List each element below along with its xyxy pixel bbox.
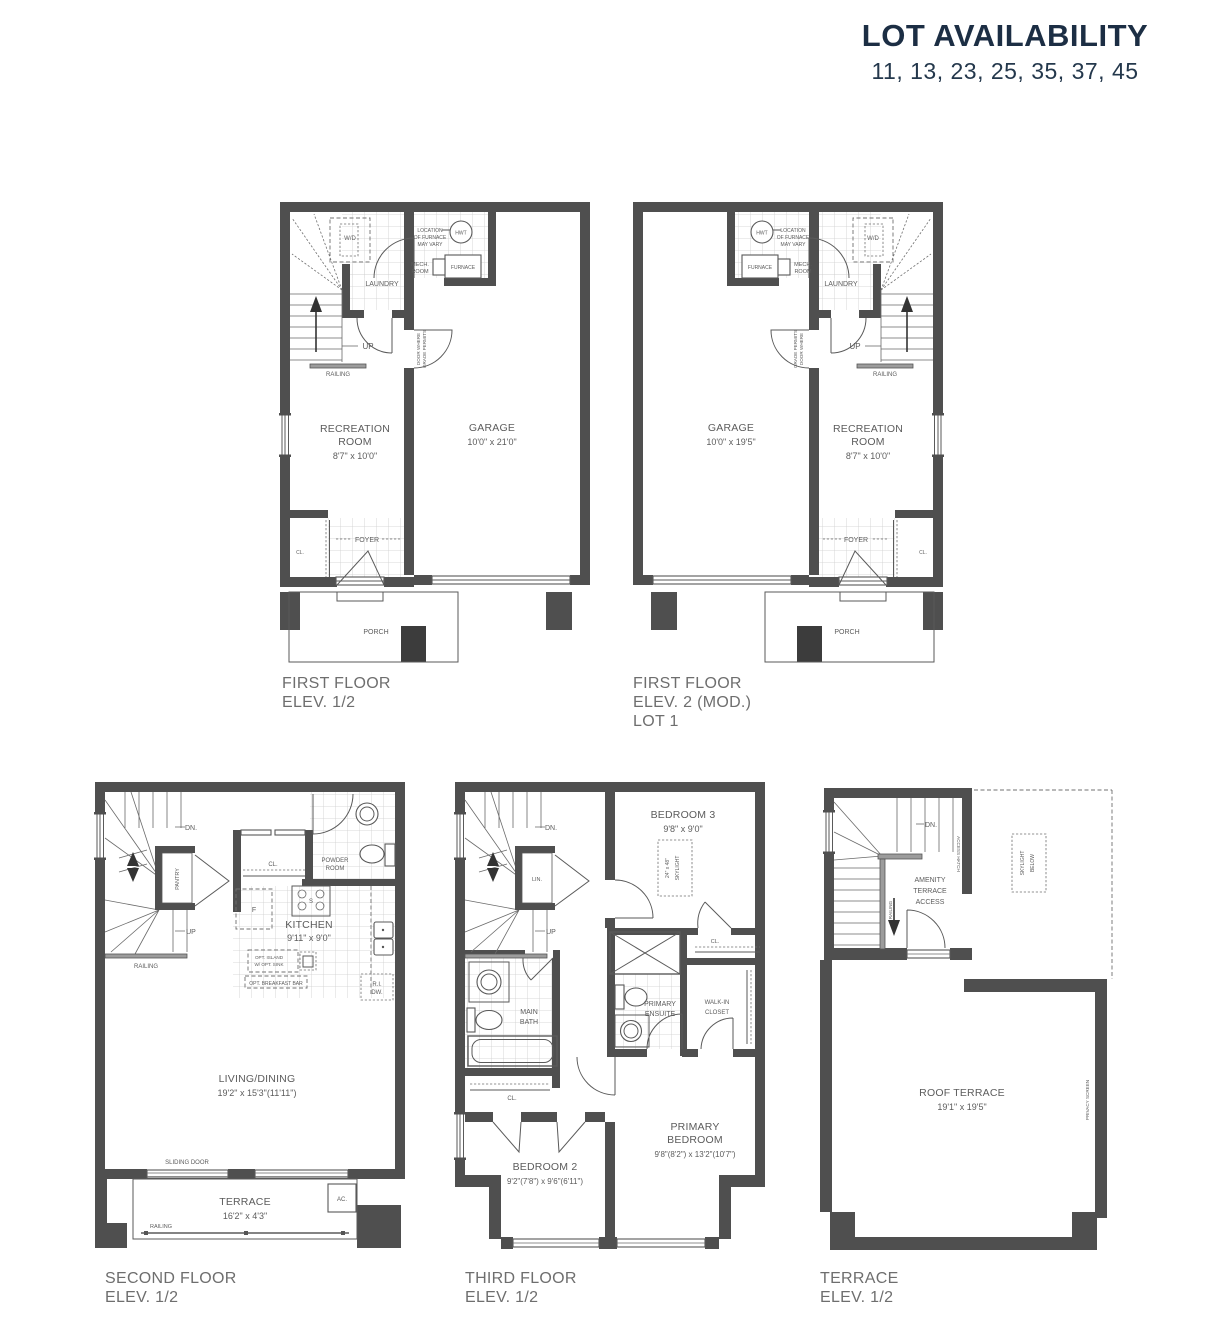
- closet-label: CL.: [711, 939, 720, 945]
- skylight-label: 24" x 48": [665, 858, 671, 878]
- island-label: OPT. ISLAND: [255, 955, 284, 960]
- recreation-room-label: RECREATION: [320, 423, 390, 435]
- first-floor-b-caption: ELEV. 2 (MOD.): [633, 694, 751, 711]
- hall-closet: [470, 1084, 550, 1090]
- recreation-room-label: ROOM: [851, 436, 884, 448]
- furnace-label: FURNACE: [748, 265, 773, 271]
- second-floor-caption: SECOND FLOOR: [105, 1270, 237, 1287]
- recreation-room-dim: 8'7" x 10'0": [333, 451, 377, 461]
- bedroom2-dim: 9'2"(7'8") x 9'6"(6'11"): [507, 1177, 583, 1186]
- up-arrow-icon: [310, 296, 322, 312]
- furnace-note: OF FURNACE: [414, 235, 447, 241]
- primary-bedroom-dim: 9'8"(8'2") x 13'2"(10'7"): [654, 1150, 735, 1159]
- terrace-dim: 16'2" x 4'3": [223, 1211, 267, 1221]
- dn-label: DN.: [925, 822, 937, 829]
- ac-label: AC.: [337, 1197, 347, 1203]
- lot-availability-header: LOT AVAILABILITY 11, 13, 23, 25, 35, 37,…: [830, 18, 1180, 85]
- terrace-caption: TERRACE: [820, 1270, 899, 1287]
- window: [823, 810, 835, 854]
- foyer-label: FOYER: [844, 537, 868, 544]
- garage-label: GARAGE: [708, 422, 754, 434]
- recreation-room-dim: 8'7" x 10'0": [846, 451, 890, 461]
- shower-icon: [610, 932, 680, 974]
- breakfast-bar-label: OPT. BREAKFAST BAR: [249, 981, 303, 987]
- recreation-room-label: RECREATION: [833, 423, 903, 435]
- primary-bedroom-label: PRIMARY: [670, 1121, 719, 1133]
- grade-door-note: GRADE PERMITS: [422, 330, 427, 368]
- walkin-label: WALK-IN: [705, 1000, 730, 1006]
- fridge-label: F: [252, 907, 256, 914]
- kitchen-dim: 9'11" x 9'0": [287, 933, 331, 943]
- hwt-label: HWT: [455, 231, 466, 237]
- linen-label: LIN.: [532, 877, 543, 883]
- door-arcs: [907, 910, 950, 958]
- third-floor-caption: ELEV. 1/2: [465, 1289, 538, 1306]
- up-label: UP: [186, 929, 196, 936]
- grade-door-note: DOOR WHERE: [799, 333, 804, 365]
- terrace-plan: DN. ACCESS HATCH RAILING AMENITY TERRACE…: [812, 782, 1132, 1328]
- first-floor-b-caption: LOT 1: [633, 713, 679, 730]
- garage-dim: 10'0" x 21'0": [467, 437, 516, 447]
- skylight-label: SKYLIGHT: [675, 856, 681, 881]
- up-label: UP: [849, 342, 860, 351]
- railing-label: RAILING: [888, 900, 893, 919]
- terrace-labels: DN. ACCESS HATCH RAILING AMENITY TERRACE…: [888, 822, 1090, 1120]
- porch-label: PORCH: [363, 629, 388, 636]
- hwt-label: HWT: [756, 231, 767, 237]
- bed3-closet: [695, 947, 760, 952]
- up-arrow-icon: [487, 852, 499, 866]
- garage-door-sill: [432, 576, 570, 584]
- linen-closet: [515, 846, 589, 910]
- grade-door-note: GRADE PERMITS: [793, 330, 798, 368]
- pantry: [155, 846, 229, 910]
- walkin-label: CLOSET: [705, 1010, 729, 1016]
- first-floor-a-caption: FIRST FLOOR: [282, 675, 391, 692]
- up-label: UP: [546, 929, 556, 936]
- closet-label: CL.: [919, 550, 927, 556]
- dn-label: DN.: [545, 825, 557, 832]
- bedroom2-label: BEDROOM 2: [513, 1161, 578, 1173]
- down-arrow-icon: [127, 868, 139, 882]
- page-title: LOT AVAILABILITY: [830, 18, 1180, 54]
- furnace-note: MAY VARY: [781, 242, 807, 248]
- second-floor-caption: ELEV. 1/2: [105, 1289, 178, 1306]
- hall-closet: [241, 830, 305, 876]
- wd-label: W/D: [867, 236, 879, 242]
- ensuite-label: ENSUITE: [645, 1011, 676, 1018]
- up-label: UP: [362, 342, 373, 351]
- main-bath-label: MAIN: [520, 1009, 538, 1016]
- first-floor-a-caption: ELEV. 1/2: [282, 694, 355, 711]
- bedroom3-dim: 9'8" x 9'0": [663, 824, 702, 834]
- powder-room-label: ROOM: [326, 866, 345, 872]
- powder-room-label: POWDER: [322, 858, 350, 864]
- laundry-label: LAUNDRY: [824, 281, 858, 288]
- furnace-note: MAY VARY: [418, 242, 444, 248]
- sliding-door-label: SLIDING DOOR: [165, 1160, 209, 1166]
- pantry-label: PANTRY: [175, 868, 181, 890]
- mech-room-label: MECH.: [794, 262, 812, 268]
- lot-numbers: 11, 13, 23, 25, 35, 37, 45: [830, 58, 1180, 85]
- island-label: W/ OPT. SINK: [254, 962, 284, 967]
- terrace-label: TERRACE: [219, 1196, 271, 1208]
- stove-label: S: [309, 899, 313, 905]
- living-dining-dim: 19'2" x 15'3"(11'11"): [218, 1088, 297, 1098]
- porch-outline: [289, 592, 458, 662]
- furnace-label: FURNACE: [451, 265, 476, 271]
- window: [94, 812, 106, 860]
- privacy-screen-label: PRIVACY SCREEN: [1085, 1080, 1090, 1120]
- down-arrow-icon: [487, 868, 499, 882]
- recreation-room-label: ROOM: [338, 436, 371, 448]
- roof-outline: [974, 790, 1112, 979]
- main-bath-label: BATH: [520, 1019, 538, 1026]
- skylight-below-label: BELOW: [1030, 854, 1036, 872]
- amenity-access-label: AMENITY: [914, 877, 945, 884]
- floorplan-sheet: LOT AVAILABILITY 11, 13, 23, 25, 35, 37,…: [0, 0, 1218, 1328]
- skylight-below-label: SKYLIGHT: [1020, 851, 1026, 876]
- closet-label: CL.: [507, 1096, 517, 1102]
- third-floor-plan: DN. LIN. UP BEDROOM 3 9'8" x 9'0" 24" x …: [455, 782, 770, 1328]
- roof-terrace-label: ROOF TERRACE: [919, 1087, 1005, 1099]
- amenity-access-label: TERRACE: [913, 888, 947, 895]
- laundry-label: LAUNDRY: [365, 281, 399, 288]
- mech-room-label: MECH.: [411, 262, 429, 268]
- garage-dim: 10'0" x 19'5": [706, 437, 755, 447]
- bedroom3-label: BEDROOM 3: [651, 809, 716, 821]
- furnace-note: LOCATION: [417, 228, 443, 234]
- living-dining-label: LIVING/DINING: [219, 1073, 296, 1085]
- closet-label: CL.: [296, 550, 304, 556]
- stairs: [834, 798, 953, 949]
- terrace-caption: ELEV. 1/2: [820, 1289, 893, 1306]
- third-floor-caption: THIRD FLOOR: [465, 1270, 577, 1287]
- furnace-note: LOCATION: [780, 228, 806, 234]
- furnace-note: OF FURNACE: [777, 235, 810, 241]
- window: [279, 413, 291, 457]
- grade-door-note: DOOR WHERE: [416, 333, 421, 365]
- foyer-label: FOYER: [355, 537, 379, 544]
- primary-bedroom-label: BEDROOM: [667, 1134, 723, 1146]
- mech-room-label: ROOM: [411, 269, 429, 275]
- down-arrow-icon: [888, 920, 900, 936]
- ensuite-label: PRIMARY: [644, 1001, 676, 1008]
- railing-label: RAILING: [150, 1224, 172, 1230]
- first-floor-b-caption: FIRST FLOOR: [633, 675, 742, 692]
- ri-dw-label: DW.: [371, 990, 383, 996]
- access-hatch-label: ACCESS HATCH: [956, 836, 961, 872]
- up-arrow-icon: [127, 852, 139, 866]
- ri-dw-label: R.I.: [372, 982, 382, 988]
- mech-room-label: ROOM: [794, 269, 812, 275]
- garage-label: GARAGE: [469, 422, 515, 434]
- closet-label: CL.: [268, 862, 278, 868]
- dn-label: DN.: [185, 825, 197, 832]
- second-floor-plan: DN. PANTRY UP RAILING CL. POWDER ROOM F …: [95, 782, 410, 1328]
- railing-label: RAILING: [134, 964, 158, 970]
- railing-label: RAILING: [873, 372, 897, 378]
- walkin-closet-rod: [747, 970, 751, 1044]
- amenity-access-label: ACCESS: [916, 899, 945, 906]
- porch-label: PORCH: [834, 629, 859, 636]
- wd-label: W/D: [344, 236, 356, 242]
- roof-terrace-dim: 19'1" x 19'5": [937, 1102, 986, 1112]
- skylight-below: [1012, 834, 1046, 892]
- first-floor-plans: W/D LOCATION OF FURNACE MAY VARY HWT MEC…: [280, 198, 945, 748]
- kitchen-label: KITCHEN: [285, 919, 333, 931]
- railing-label: RAILING: [326, 372, 350, 378]
